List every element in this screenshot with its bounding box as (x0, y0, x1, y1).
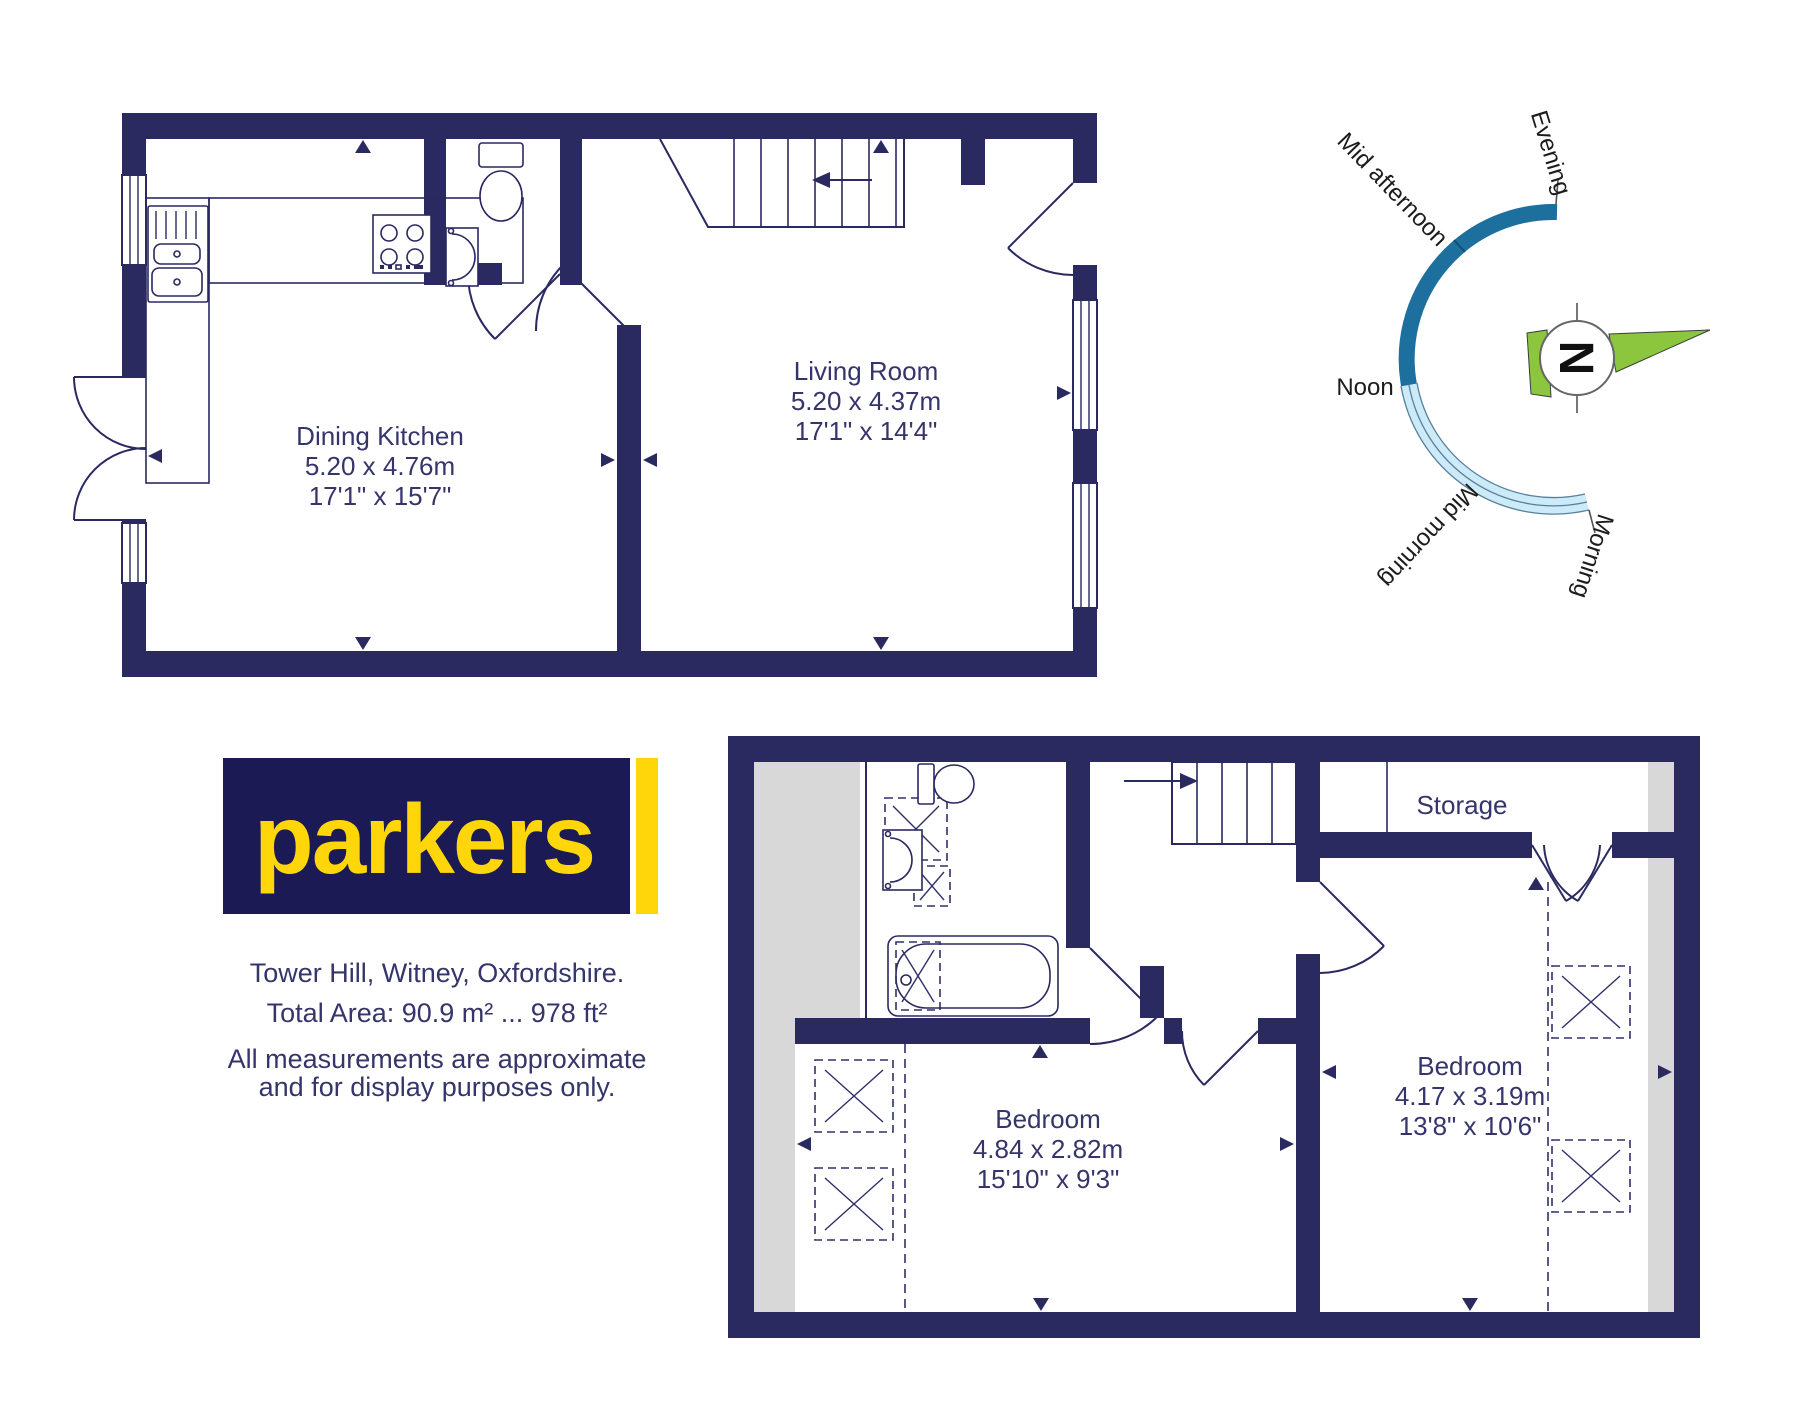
compass-evening-label: Evening (1525, 107, 1576, 198)
right-bedroom-name: Bedroom (1417, 1051, 1523, 1081)
ground-floor-windows (122, 175, 1097, 608)
living-room-label: Living Room 5.20 x 4.37m 17'1" x 14'4" (791, 356, 941, 446)
stairs-up-arrow-icon (1124, 773, 1198, 789)
floorplan-page: Dining Kitchen 5.20 x 4.76m 17'1" x 15'7… (0, 0, 1817, 1409)
north-letter: N (1549, 341, 1602, 376)
floorplan-svg: Dining Kitchen 5.20 x 4.76m 17'1" x 15'7… (0, 0, 1817, 1409)
bathroom-toilet-icon (918, 764, 974, 804)
dining-kitchen-metric: 5.20 x 4.76m (305, 451, 455, 481)
hob-icon (373, 215, 431, 273)
living-room-metric: 5.20 x 4.37m (791, 386, 941, 416)
wc-basin-icon (446, 228, 478, 286)
disclaimer-line-2: and for display purposes only. (259, 1072, 616, 1102)
disclaimer-line-1: All measurements are approximate (228, 1044, 647, 1074)
compass-mid-morning-label: Mid morning (1373, 478, 1483, 593)
left-bedroom-label: Bedroom 4.84 x 2.82m 15'10" x 9'3" (973, 1104, 1123, 1194)
storage-name: Storage (1416, 790, 1507, 820)
left-bedroom-imperial: 15'10" x 9'3" (977, 1164, 1120, 1194)
living-room-imperial: 17'1" x 14'4" (795, 416, 938, 446)
branding: parkers Tower Hill, Witney, Oxfordshire.… (223, 758, 658, 1102)
bathtub-icon (888, 936, 1058, 1016)
compass-mid-afternoon-label: Mid afternoon (1332, 127, 1453, 251)
dining-kitchen-name: Dining Kitchen (296, 421, 464, 451)
right-bedroom-wardrobes (1548, 882, 1630, 1312)
dining-kitchen-imperial: 17'1" x 15'7" (309, 481, 452, 511)
north-pointer-icon: N (1527, 303, 1710, 413)
left-bedroom-wardrobes (815, 1044, 905, 1312)
bathroom-basin-icon (883, 830, 922, 890)
logo-text: parkers (254, 784, 594, 894)
sun-compass: N Evening Mid afternoon Noon Mid morning… (1332, 107, 1710, 601)
left-bedroom-name: Bedroom (995, 1104, 1101, 1134)
first-floor-stairs (1124, 762, 1296, 844)
parkers-logo: parkers (223, 758, 658, 914)
total-area-line: Total Area: 90.9 m² ... 978 ft² (267, 998, 608, 1028)
right-bedroom-label: Bedroom 4.17 x 3.19m 13'8" x 10'6" (1395, 1051, 1545, 1141)
living-room-name: Living Room (794, 356, 939, 386)
wc-toilet-icon (479, 143, 523, 221)
compass-morning-label: Morning (1566, 511, 1618, 602)
right-bedroom-imperial: 13'8" x 10'6" (1399, 1111, 1542, 1141)
left-bedroom-metric: 4.84 x 2.82m (973, 1134, 1123, 1164)
first-floor-plan: Storage Bedroom 4.84 x 2.82m 15'10" x 9'… (728, 736, 1700, 1338)
kitchen-sink-icon (148, 206, 208, 302)
right-bedroom-metric: 4.17 x 3.19m (1395, 1081, 1545, 1111)
morning-arc (1409, 385, 1587, 506)
first-floor-walls (728, 736, 1700, 1338)
ground-floor-stairs (660, 139, 904, 227)
address-line: Tower Hill, Witney, Oxfordshire. (250, 958, 625, 988)
storage-label: Storage (1416, 790, 1507, 820)
dining-kitchen-label: Dining Kitchen 5.20 x 4.76m 17'1" x 15'7… (296, 421, 464, 511)
compass-noon-label: Noon (1336, 374, 1393, 401)
ground-floor-plan: Dining Kitchen 5.20 x 4.76m 17'1" x 15'7… (74, 113, 1097, 677)
